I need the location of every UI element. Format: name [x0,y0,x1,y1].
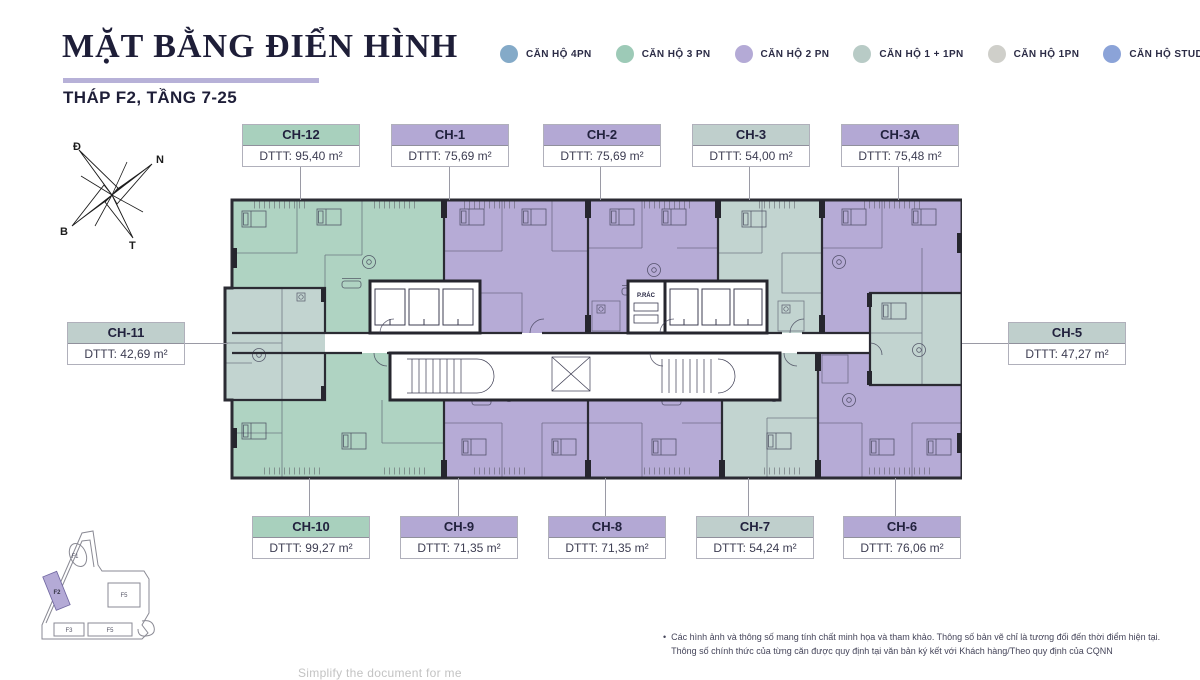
unit-card-ch3: CH-3 DTTT: 54,00 m² [692,124,810,167]
unit-card-ch5: CH-5 DTTT: 47,27 m² [1008,322,1126,365]
site-label-f5-bottom: F5 [106,628,114,634]
legend-label: CĂN HỘ 3 PN [642,49,711,60]
unit-card-ch9: CH-9 DTTT: 71,35 m² [400,516,518,559]
legend-item-2pn: CĂN HỘ 2 PN [735,45,830,63]
site-label-f2: F2 [53,590,61,596]
unit-card-ch12: CH-12 DTTT: 95,40 m² [242,124,360,167]
unit-id: CH-9 [401,517,517,538]
unit-id: CH-10 [253,517,369,538]
title-underline [63,78,319,83]
legend-label: CĂN HỘ 1 + 1PN [879,49,963,60]
unit-area: DTTT: 75,48 m² [842,146,958,166]
compass-rose-icon: Đ N B T [55,138,170,250]
legend-dot-4pn-icon [500,45,518,63]
legend-label: CĂN HỘ 1PN [1014,49,1080,60]
compass-label-d: Đ [73,141,81,153]
page-title: MẶT BẰNG ĐIỂN HÌNH [62,28,458,66]
unit-area: DTTT: 76,06 m² [844,538,960,558]
trash-room: P.RÁC [628,281,665,333]
legend-item-4pn: CĂN HỘ 4PN [500,45,592,63]
unit-id: CH-3 [693,125,809,146]
legend-label: CĂN HỘ 2 PN [761,49,830,60]
unit-area: DTTT: 54,00 m² [693,146,809,166]
stair-core [390,353,780,400]
trash-room-label: P.RÁC [637,292,656,299]
legend-dot-1plus1pn-icon [853,45,871,63]
unit-card-ch11: CH-11 DTTT: 42,69 m² [67,322,185,365]
disclaimer: • Các hình ảnh và thông số mang tính chấ… [663,630,1190,659]
elevator-core-east [665,281,767,333]
legend-item-1plus1pn: CĂN HỘ 1 + 1PN [853,45,963,63]
legend: CĂN HỘ 4PN CĂN HỘ 3 PN CĂN HỘ 2 PN CĂN H… [500,45,1200,63]
unit-card-ch6: CH-6 DTTT: 76,06 m² [843,516,961,559]
unit-id: CH-6 [844,517,960,538]
unit-card-ch2: CH-2 DTTT: 75,69 m² [543,124,661,167]
compass-label-b: B [60,226,68,238]
watermark-text: Simplify the document for me [298,666,462,680]
unit-region-ch11 [225,288,325,400]
unit-card-ch3a: CH-3A DTTT: 75,48 m² [841,124,959,167]
disclaimer-line2: Thông số chính thức của từng căn được qu… [671,646,1113,656]
unit-id: CH-5 [1009,323,1125,344]
unit-id: CH-11 [68,323,184,344]
unit-id: CH-1 [392,125,508,146]
legend-item-3pn: CĂN HỘ 3 PN [616,45,711,63]
unit-id: CH-8 [549,517,665,538]
disclaimer-line1: Các hình ảnh và thông số mang tính chất … [671,632,1160,642]
legend-dot-3pn-icon [616,45,634,63]
unit-area: DTTT: 71,35 m² [401,538,517,558]
floor-plan: P.RÁC [222,193,962,483]
disclaimer-bullet: • [663,630,666,659]
unit-area: DTTT: 95,40 m² [243,146,359,166]
compass-label-t: T [129,240,136,250]
legend-label: CĂN HỘ 4PN [526,49,592,60]
legend-item-1pn: CĂN HỘ 1PN [988,45,1080,63]
corridor [325,333,870,353]
unit-id: CH-7 [697,517,813,538]
unit-area: DTTT: 99,27 m² [253,538,369,558]
legend-label: CĂN HỘ STUDIO [1129,49,1200,60]
unit-area: DTTT: 42,69 m² [68,344,184,364]
unit-id: CH-12 [243,125,359,146]
elevator-core-west [370,281,480,333]
site-label-f3: F3 [65,628,73,634]
unit-area: DTTT: 47,27 m² [1009,344,1125,364]
unit-area: DTTT: 75,69 m² [392,146,508,166]
unit-card-ch8: CH-8 DTTT: 71,35 m² [548,516,666,559]
unit-card-ch1: CH-1 DTTT: 75,69 m² [391,124,509,167]
legend-item-studio: CĂN HỘ STUDIO [1103,45,1200,63]
page-subtitle: THÁP F2, TẦNG 7-25 [63,88,237,108]
unit-area: DTTT: 54,24 m² [697,538,813,558]
site-minimap: F1 F2 F5 F3 F5 [30,525,165,665]
legend-dot-2pn-icon [735,45,753,63]
floorplan-page: { "header": { "title": "MẶT BẰNG ĐIỂN HÌ… [0,0,1200,675]
unit-area: DTTT: 75,69 m² [544,146,660,166]
unit-card-ch7: CH-7 DTTT: 54,24 m² [696,516,814,559]
legend-dot-1pn-icon [988,45,1006,63]
unit-card-ch10: CH-10 DTTT: 99,27 m² [252,516,370,559]
site-label-f1: F1 [71,554,79,560]
unit-id: CH-2 [544,125,660,146]
unit-id: CH-3A [842,125,958,146]
compass-label-n: N [156,154,164,166]
legend-dot-studio-icon [1103,45,1121,63]
unit-area: DTTT: 71,35 m² [549,538,665,558]
site-label-f5-right: F5 [120,593,128,599]
